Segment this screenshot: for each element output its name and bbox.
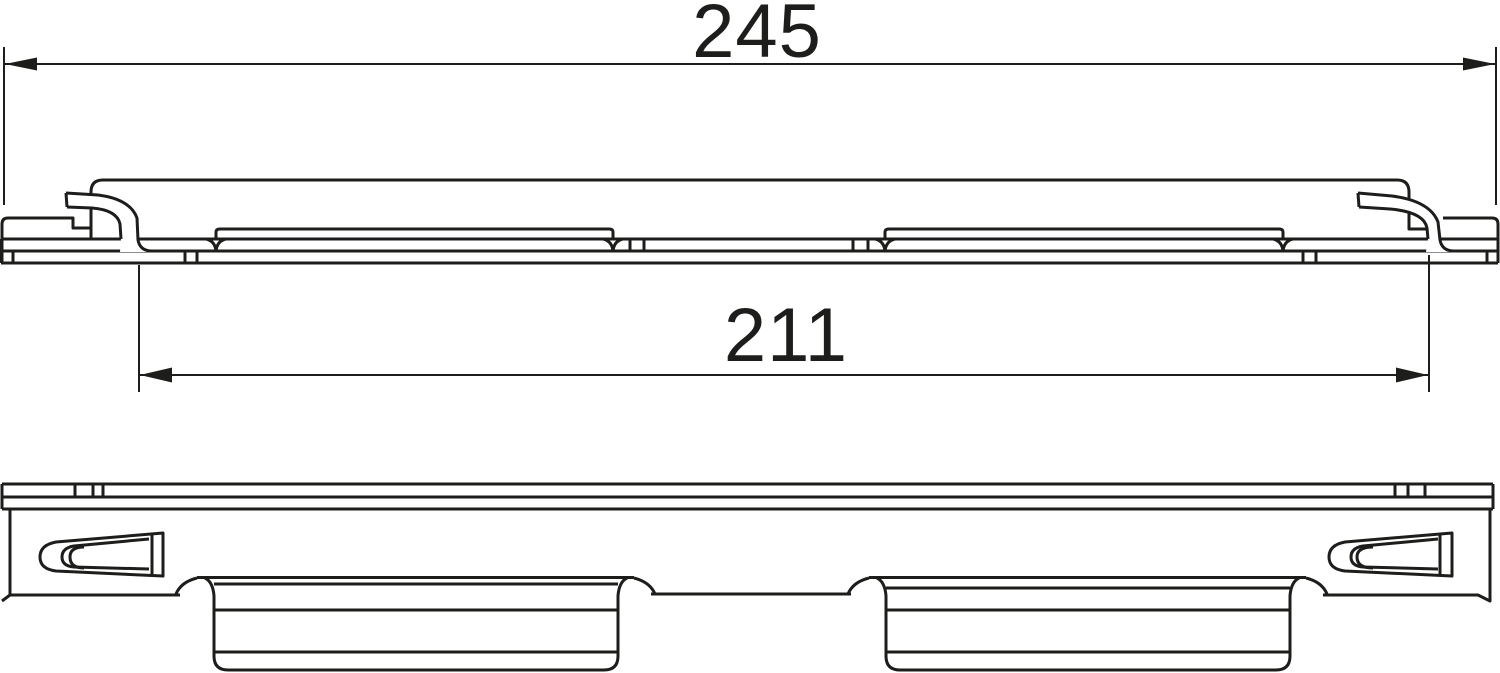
relief-petal (206, 239, 226, 251)
left-pocket-ear-right (634, 578, 655, 594)
body-right-edge (1323, 509, 1490, 601)
dimension-label-clip-span: 211 (724, 293, 848, 378)
technical-drawing-canvas: 245 211 (0, 0, 1500, 673)
drawing-svg: 245 211 (0, 0, 1500, 673)
side-view (1, 180, 1498, 263)
bottom-view (2, 484, 1493, 670)
dimension-label-overall: 245 (692, 0, 822, 74)
relief-petal (875, 239, 895, 251)
left-lance-tongue (70, 547, 84, 568)
left-pocket-wall (205, 578, 627, 670)
left-clip-strap-tip (66, 193, 67, 207)
relief-petal (603, 239, 623, 251)
right-lance-tongue (1357, 547, 1373, 568)
relief-petal (1273, 239, 1293, 251)
right-pocket-ear-left (848, 578, 869, 594)
dimension-clip-span: 211 (139, 255, 1429, 392)
arrowhead-right (1463, 58, 1495, 71)
right-lance-inner (1351, 539, 1438, 569)
right-clip-strap-tip (1358, 193, 1359, 207)
left-pocket-ear-left (176, 578, 197, 594)
body-left-edge (2, 509, 10, 601)
right-pocket-wall (877, 578, 1299, 670)
arrowhead-left (5, 58, 37, 71)
dimension-overall-length: 245 (4, 0, 1496, 205)
arrowhead-left (140, 368, 172, 383)
arrowhead-right (1396, 368, 1428, 383)
right-pocket-ear-right (1306, 578, 1327, 594)
